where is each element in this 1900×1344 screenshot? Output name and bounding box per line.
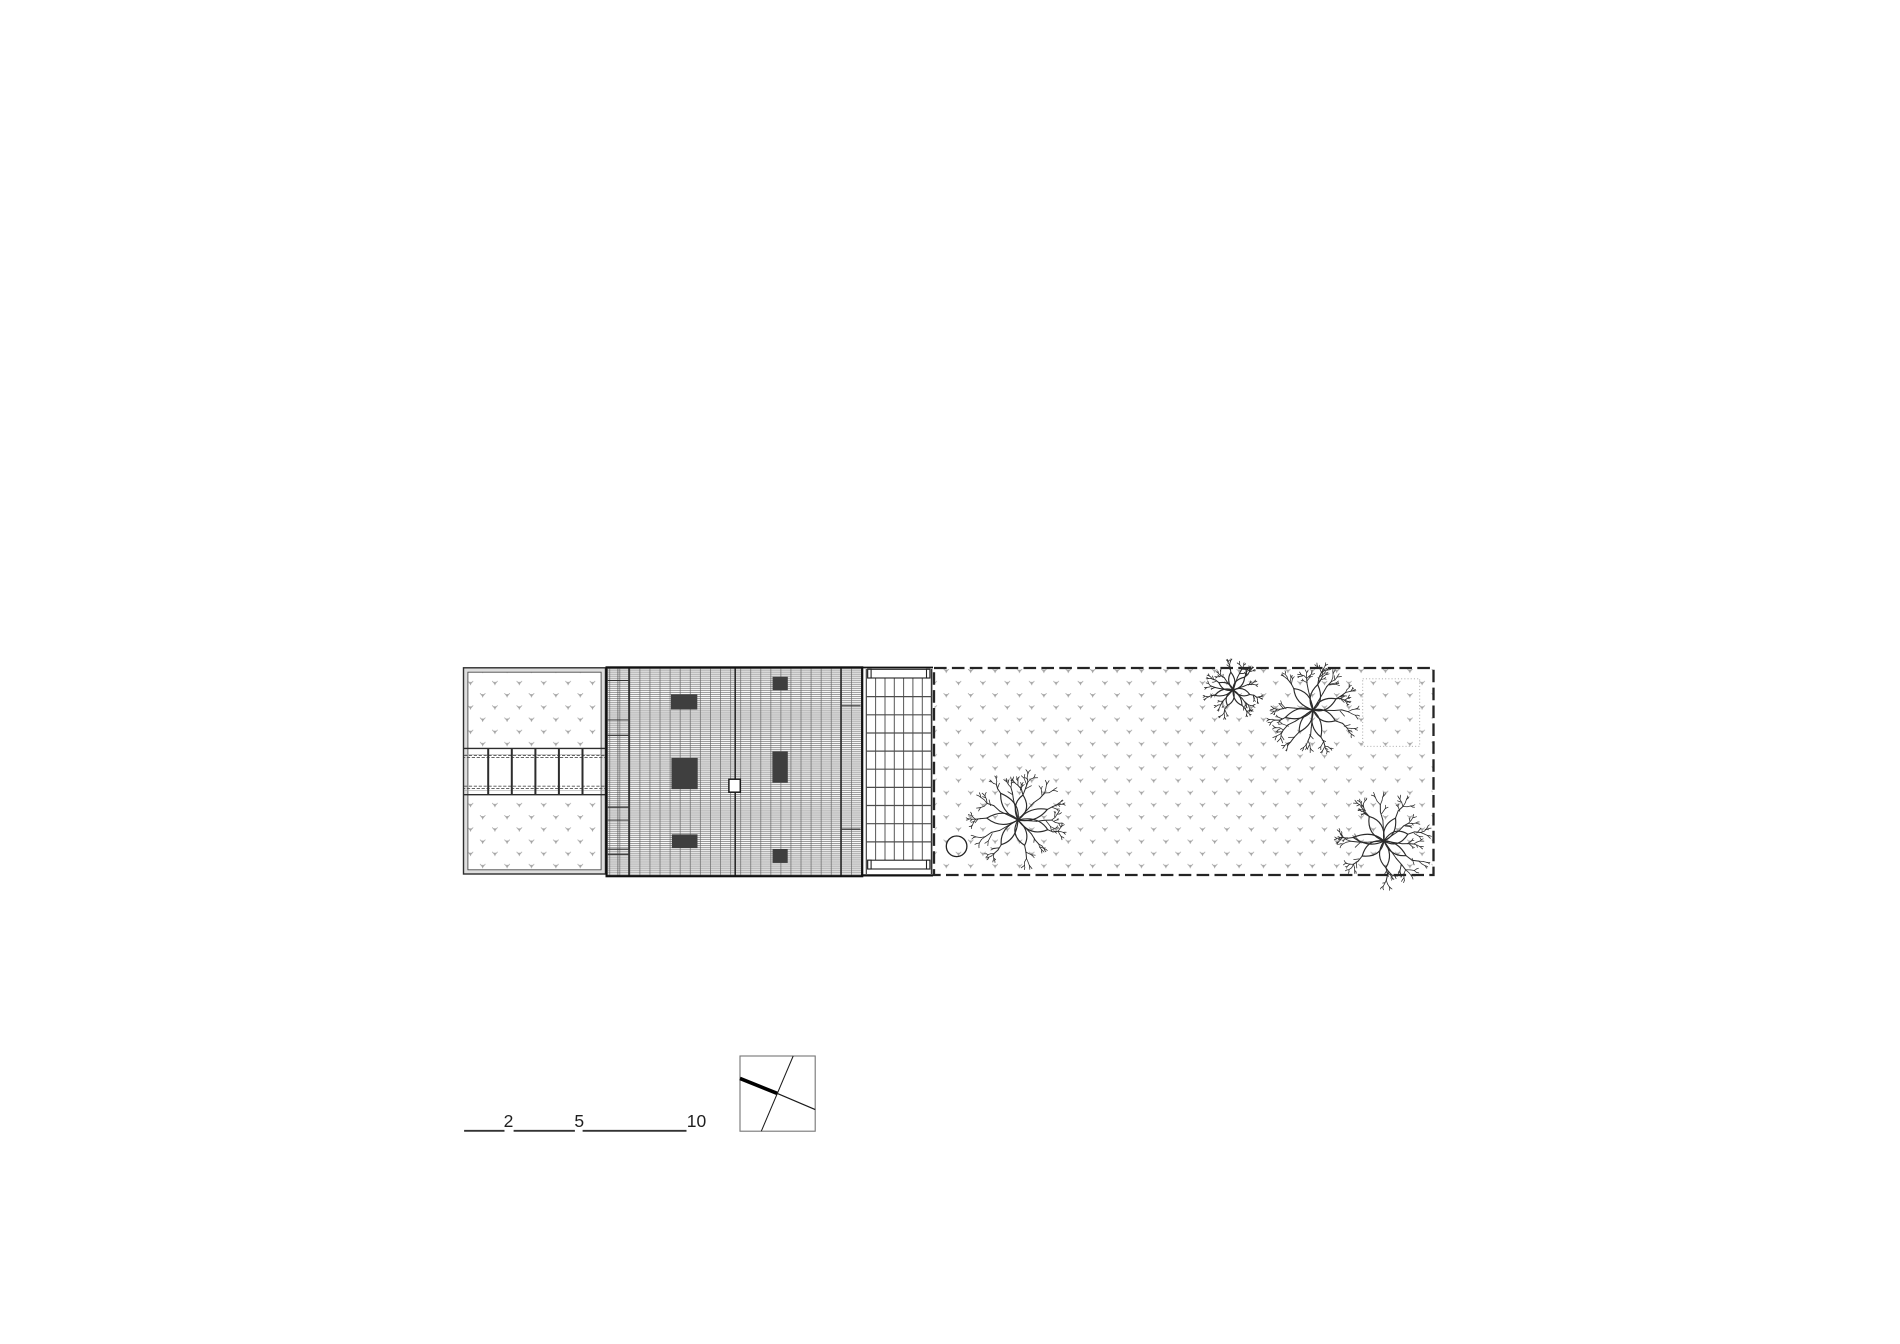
svg-text:10: 10	[687, 1111, 707, 1131]
svg-text:5: 5	[574, 1111, 584, 1131]
svg-text:2: 2	[504, 1111, 514, 1131]
